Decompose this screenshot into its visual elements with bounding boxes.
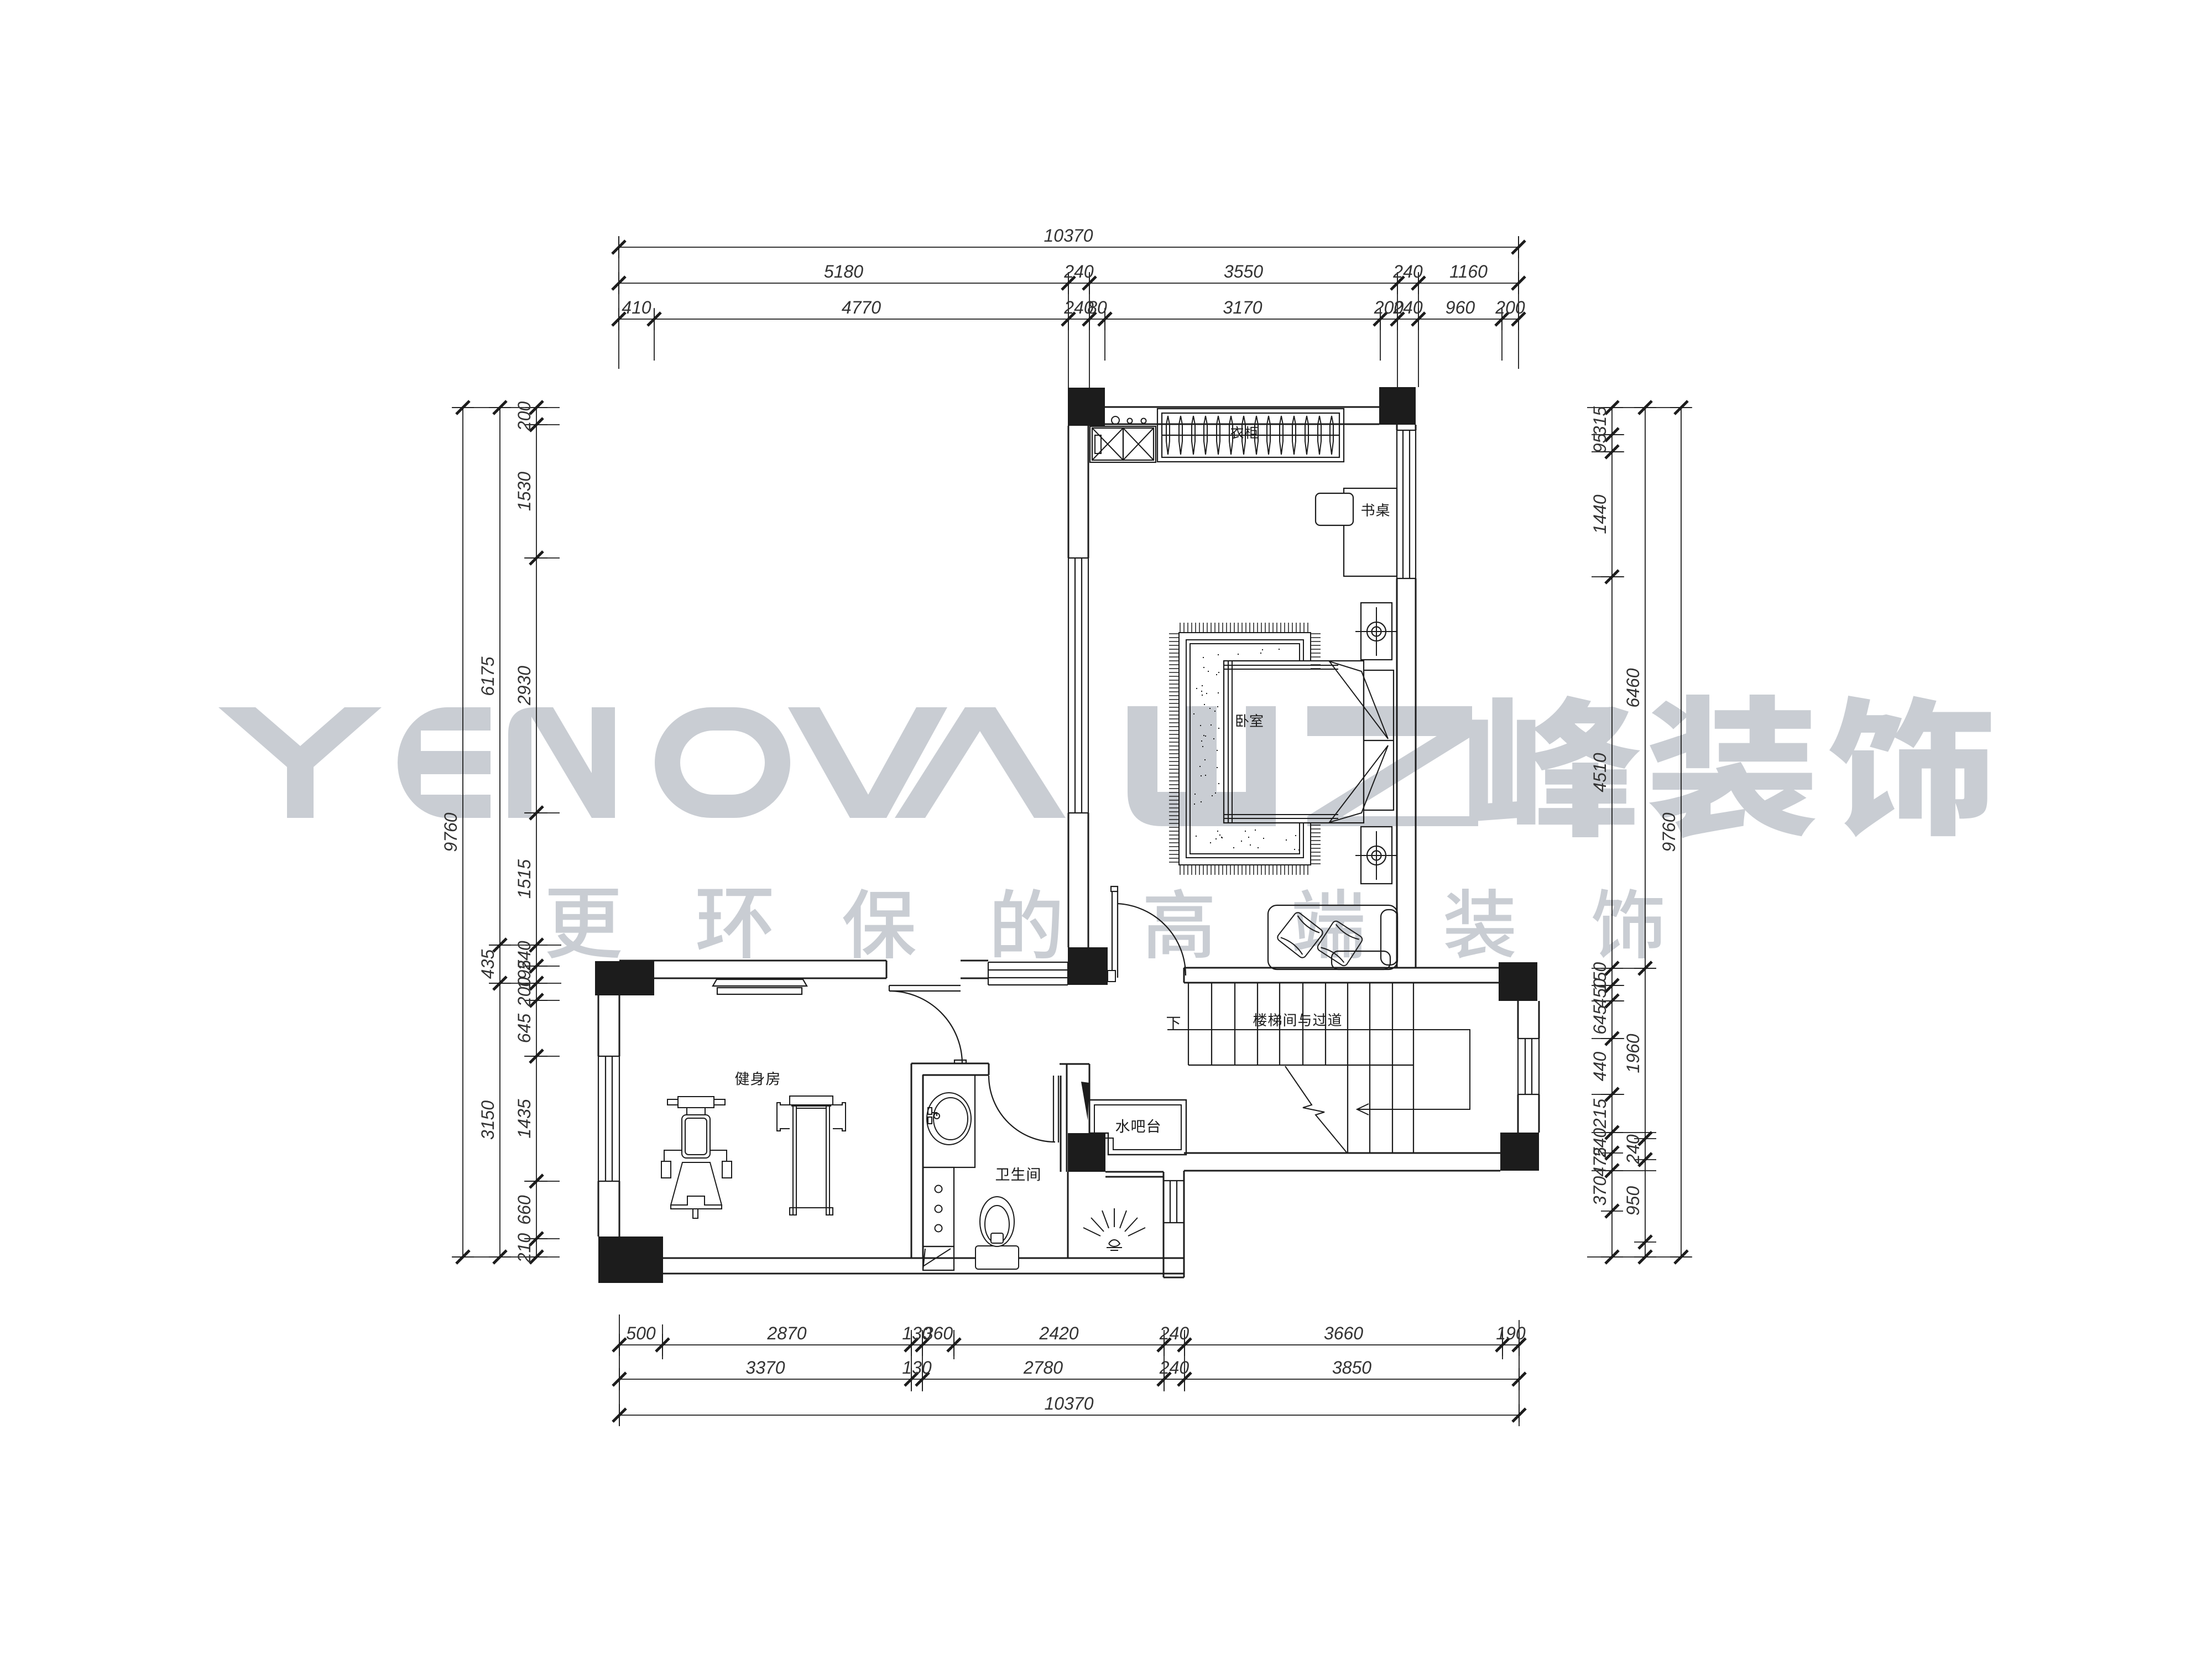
svg-text:3150: 3150	[478, 1100, 498, 1140]
svg-text:370: 370	[1590, 1176, 1610, 1206]
svg-text:475: 475	[1590, 1147, 1610, 1177]
svg-text:3850: 3850	[1332, 1358, 1371, 1378]
svg-text:10370: 10370	[1044, 226, 1093, 246]
svg-text:240: 240	[1159, 1358, 1190, 1378]
svg-text:240: 240	[1392, 298, 1423, 317]
svg-text:440: 440	[1590, 1052, 1610, 1082]
svg-text:360: 360	[924, 1323, 953, 1343]
svg-text:1435: 1435	[514, 1099, 534, 1138]
svg-text:4770: 4770	[842, 298, 881, 317]
svg-text:215: 215	[1590, 1099, 1610, 1129]
svg-text:2420: 2420	[1039, 1323, 1078, 1343]
svg-text:1160: 1160	[1449, 262, 1488, 281]
svg-text:200: 200	[514, 401, 534, 432]
svg-text:660: 660	[514, 1195, 534, 1225]
svg-text:130: 130	[902, 1358, 932, 1378]
svg-text:1440: 1440	[1590, 494, 1610, 534]
svg-text:240: 240	[1159, 1323, 1190, 1343]
svg-text:2870: 2870	[766, 1323, 806, 1343]
svg-text:240: 240	[1623, 1134, 1643, 1165]
svg-text:190: 190	[1496, 1323, 1526, 1343]
svg-text:3170: 3170	[1223, 298, 1262, 317]
svg-text:1530: 1530	[514, 472, 534, 511]
svg-text:9760: 9760	[441, 812, 461, 852]
svg-text:1960: 1960	[1623, 1034, 1643, 1073]
svg-text:200: 200	[1495, 298, 1525, 317]
svg-text:240: 240	[1392, 262, 1423, 281]
svg-text:200: 200	[514, 977, 534, 1008]
svg-text:80: 80	[1087, 298, 1107, 317]
svg-text:3370: 3370	[745, 1358, 785, 1378]
svg-text:240: 240	[1063, 262, 1094, 281]
svg-text:3550: 3550	[1224, 262, 1263, 281]
svg-text:950: 950	[1623, 1186, 1643, 1216]
svg-text:4510: 4510	[1590, 753, 1610, 792]
svg-text:315: 315	[1590, 406, 1610, 436]
svg-text:450: 450	[1590, 978, 1610, 1008]
svg-text:3660: 3660	[1324, 1323, 1363, 1343]
svg-text:1515: 1515	[514, 859, 534, 899]
svg-text:6460: 6460	[1623, 668, 1643, 707]
svg-text:6175: 6175	[478, 656, 498, 696]
svg-text:9760: 9760	[1659, 812, 1679, 852]
svg-text:95: 95	[1590, 434, 1610, 453]
svg-text:645: 645	[514, 1014, 534, 1044]
svg-text:435: 435	[478, 950, 498, 979]
svg-text:500: 500	[626, 1323, 656, 1343]
svg-text:210: 210	[514, 1233, 534, 1264]
svg-text:645: 645	[1590, 1005, 1610, 1035]
svg-text:960: 960	[1446, 298, 1475, 317]
svg-text:2780: 2780	[1023, 1358, 1063, 1378]
svg-text:2930: 2930	[514, 666, 534, 706]
svg-text:5180: 5180	[824, 262, 863, 281]
svg-text:410: 410	[622, 298, 651, 317]
svg-text:10370: 10370	[1045, 1394, 1094, 1413]
